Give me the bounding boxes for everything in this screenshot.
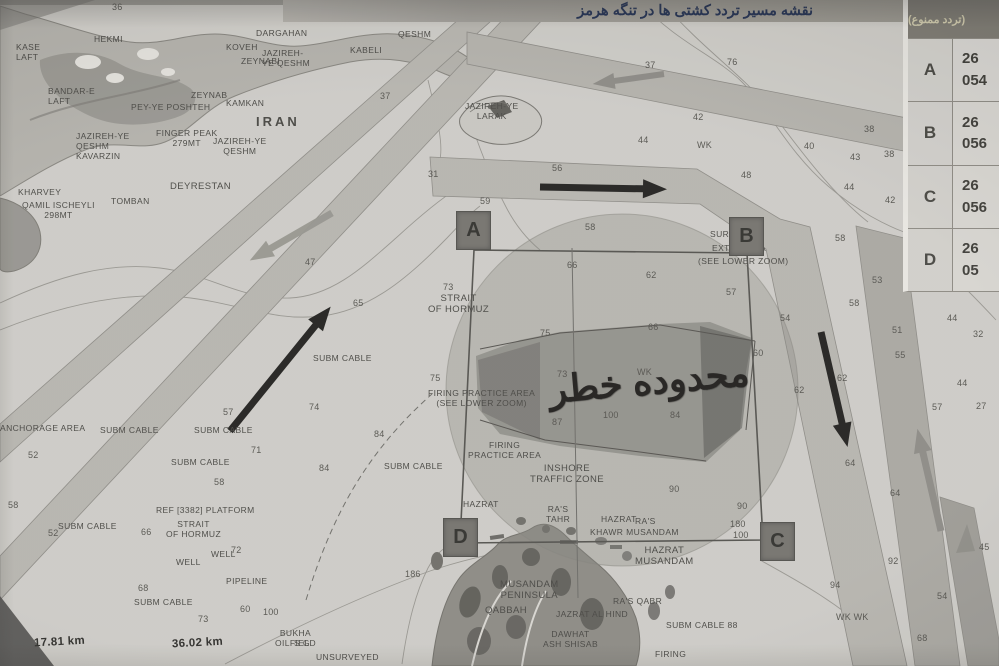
place-label: STRAIT OF HORMUZ	[428, 293, 489, 315]
place-label: PIPELINE	[226, 576, 267, 586]
point-letter: D	[908, 229, 953, 291]
place-label: IRAN	[256, 114, 300, 129]
depth-number: 42	[885, 195, 895, 206]
depth-number: 62	[837, 373, 847, 384]
depth-number: 58	[8, 500, 18, 511]
place-label: HAZRAT	[601, 514, 637, 524]
depth-number: 55	[895, 350, 905, 361]
depth-number: 58	[835, 233, 845, 244]
place-label: DARGAHAN	[256, 28, 307, 38]
place-label: QAMIL ISCHEYLI 298MT	[22, 200, 95, 220]
depth-number: 59	[480, 196, 490, 207]
place-label: RA'S TAHR	[546, 504, 570, 524]
place-label: KABELI	[350, 45, 382, 55]
depth-number: 90	[737, 501, 747, 512]
place-label: S G	[294, 638, 310, 648]
depth-number: 54	[937, 591, 947, 602]
depth-number: 58	[849, 298, 859, 309]
point-coords: 26 054	[953, 39, 999, 101]
depth-number: 51	[892, 325, 902, 336]
depth-number: 84	[319, 463, 329, 474]
place-label: RA'S	[635, 516, 656, 526]
place-label: STRAIT OF HORMUZ	[166, 519, 221, 539]
place-label: DEYRESTAN	[170, 181, 231, 192]
place-label: KHARVEY	[18, 187, 61, 197]
depth-number: 44	[638, 135, 648, 146]
depth-number: 100	[733, 530, 749, 541]
point-coords: 26 056	[953, 102, 999, 164]
place-label: SUBM CABLE 88	[666, 620, 738, 630]
depth-number: 44	[947, 313, 957, 324]
place-label: SUBM CABLE	[313, 353, 372, 363]
depth-number: 57	[726, 287, 736, 298]
place-label: ZEYNAB	[191, 90, 227, 100]
place-label: HAZRAT	[463, 499, 499, 509]
depth-number: 40	[804, 141, 814, 152]
place-label: TOMBAN	[111, 196, 150, 206]
table-header-label: (تردد ممنوع)	[908, 13, 965, 26]
place-label: KHAWR MUSANDAM	[590, 527, 679, 537]
place-label: WELL	[176, 557, 201, 567]
place-label: JAZIREH-YE LARAK	[465, 101, 519, 121]
depth-number: 42	[693, 112, 703, 123]
place-label: QESHM	[398, 29, 431, 39]
depth-number: 54	[780, 313, 790, 324]
corner-marker: A	[456, 211, 491, 250]
depth-number: 58	[585, 222, 595, 233]
point-letter: A	[908, 39, 953, 101]
depth-number: 44	[844, 182, 854, 193]
place-label: BANDAR-E LAFT	[48, 86, 95, 106]
table-row-b: B 26 056	[908, 101, 999, 164]
depth-number: 64	[890, 488, 900, 499]
depth-number: 27	[976, 401, 986, 412]
depth-number: 31	[428, 169, 438, 180]
table-row-c: C 26 056	[908, 165, 999, 228]
place-label: SUBM CABLE	[384, 461, 443, 471]
depth-number: 62	[794, 385, 804, 396]
depth-number: 64	[845, 458, 855, 469]
depth-number: 56	[552, 163, 562, 174]
depth-number: 52	[28, 450, 38, 461]
place-label: REF [3382] PLATFORM	[156, 505, 255, 515]
place-label: KOVEH	[226, 42, 258, 52]
place-label: SUBM CABLE	[100, 425, 159, 435]
depth-number: 68	[138, 583, 148, 594]
place-label: SUBM CABLE	[134, 597, 193, 607]
depth-number: 38	[864, 124, 874, 135]
depth-number: 43	[850, 152, 860, 163]
depth-number: 57	[223, 407, 233, 418]
depth-number: 100	[263, 607, 279, 618]
place-label: KASE LAFT	[16, 42, 40, 62]
place-label: JAZIREH-YE QESHM	[213, 136, 267, 156]
depth-number: 65	[353, 298, 363, 309]
depth-number: 73	[443, 282, 453, 293]
place-label: HEKMI	[94, 34, 123, 44]
coords-table: (تردد ممنوع) A 26 054 B 26 056 C 26 056 …	[903, 0, 999, 292]
place-label: JAZIREH- YE QESHM	[262, 48, 310, 68]
depth-number: 180	[730, 519, 746, 530]
place-label: SUBM CABLE	[58, 521, 117, 531]
depth-number: 38	[884, 149, 894, 160]
depth-number: 66	[648, 322, 658, 333]
scale-label: 36.02 km	[172, 636, 224, 652]
depth-number: 58	[214, 477, 224, 488]
map-title-band: نقشه مسیر تردد کشتی ها در تنگه هرمز	[283, 0, 905, 22]
point-letter: C	[908, 166, 953, 228]
chart-photo: KASE LAFTHEKMIBANDAR-E LAFTDARGAHANKOVEH…	[0, 0, 999, 666]
depth-number: 52	[48, 528, 58, 539]
place-label: FINGER PEAK 279MT	[156, 128, 218, 148]
corner-marker: B	[729, 217, 764, 256]
place-label: KAMKAN	[226, 98, 264, 108]
corner-marker: C	[760, 522, 795, 561]
place-label: INSHORE TRAFFIC ZONE	[530, 463, 604, 485]
place-label: FIRING PRACTICE AREA (SEE LOWER ZOOM)	[428, 388, 535, 408]
map-title: نقشه مسیر تردد کشتی ها در تنگه هرمز	[577, 3, 813, 19]
depth-number: 90	[669, 484, 679, 495]
table-header: (تردد ممنوع)	[908, 0, 999, 38]
corner-marker: D	[443, 518, 478, 557]
scale-label: 17.81 km	[34, 635, 86, 651]
place-label: JAZRAT AL HIND	[556, 609, 628, 619]
place-label: MUSANDAM PENINSULA	[500, 579, 559, 601]
depth-number: 87	[552, 417, 562, 428]
place-label: QABBAH	[485, 605, 527, 616]
depth-number: WK WK	[836, 612, 869, 623]
depth-number: 84	[670, 410, 680, 421]
table-row-d: D 26 05	[908, 228, 999, 291]
place-label: PEY-YE POSHTEH	[131, 102, 210, 112]
danger-zone-label: محدوده خطر	[525, 349, 774, 413]
point-coords: 26 05	[953, 229, 999, 291]
depth-number: 37	[380, 91, 390, 102]
table-row-a: A 26 054	[908, 38, 999, 101]
depth-number: 92	[888, 556, 898, 567]
depth-number: 37	[645, 60, 655, 71]
place-label: FIRING PRACTICE AREA	[468, 440, 541, 460]
depth-number: 44	[957, 378, 967, 389]
place-label: ANCHORAGE AREA	[0, 423, 85, 433]
place-label: DAWHAT ASH SHISAB	[543, 629, 598, 649]
depth-number: 74	[309, 402, 319, 413]
depth-number: 72	[231, 545, 241, 556]
point-letter: B	[908, 102, 953, 164]
depth-number: 36	[112, 2, 122, 13]
depth-number: 71	[251, 445, 261, 456]
depth-number: 100	[603, 410, 619, 421]
place-label: UNSURVEYED	[316, 652, 379, 662]
depth-number: WK	[697, 140, 712, 151]
depth-number: 186	[405, 569, 421, 580]
depth-number: 32	[973, 329, 983, 340]
depth-number: 73	[198, 614, 208, 625]
depth-number: 53	[872, 275, 882, 286]
place-label: SUBM CABLE	[171, 457, 230, 467]
depth-number: 68	[917, 633, 927, 644]
place-label: SUBM CABLE	[194, 425, 253, 435]
depth-number: 48	[741, 170, 751, 181]
labels-layer: KASE LAFTHEKMIBANDAR-E LAFTDARGAHANKOVEH…	[0, 0, 999, 666]
place-label: FIRING	[655, 649, 686, 659]
depth-number: 75	[540, 328, 550, 339]
depth-number: 45	[979, 542, 989, 553]
place-label: JAZIREH-YE QESHM KAVARZIN	[76, 131, 130, 161]
depth-number: 62	[646, 270, 656, 281]
depth-number: 47	[305, 257, 315, 268]
depth-number: 60	[240, 604, 250, 615]
depth-number: 57	[932, 402, 942, 413]
depth-number: 75	[430, 373, 440, 384]
depth-number: 76	[727, 57, 737, 68]
depth-number: 66	[567, 260, 577, 271]
point-coords: 26 056	[953, 166, 999, 228]
place-label: RA'S QABR	[613, 596, 662, 606]
depth-number: 94	[830, 580, 840, 591]
depth-number: 66	[141, 527, 151, 538]
place-label: HAZRAT MUSANDAM	[635, 545, 694, 567]
place-label: (SEE LOWER ZOOM)	[698, 256, 788, 266]
depth-number: 84	[374, 429, 384, 440]
